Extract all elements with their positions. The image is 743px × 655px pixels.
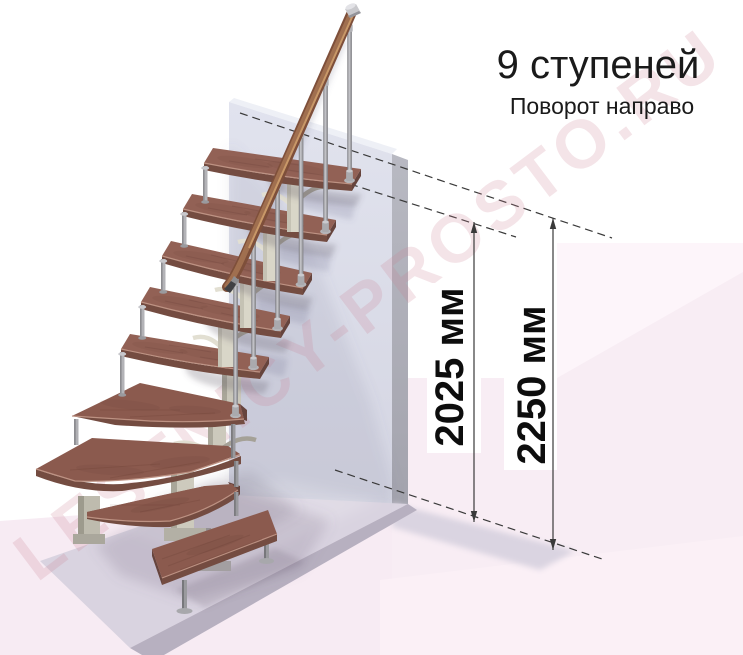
svg-text:2025 мм: 2025 мм bbox=[428, 287, 472, 446]
svg-text:2250 мм: 2250 мм bbox=[510, 305, 554, 464]
svg-text:Поворот направо: Поворот направо bbox=[510, 93, 694, 119]
svg-text:9 ступеней: 9 ступеней bbox=[497, 43, 700, 87]
